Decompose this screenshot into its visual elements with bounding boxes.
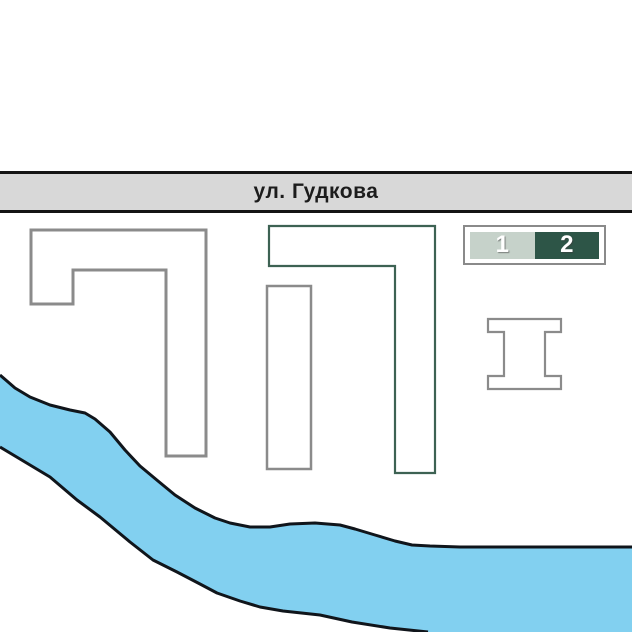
block-2-button[interactable]: 2 bbox=[535, 232, 600, 259]
building-outline-right bbox=[488, 319, 561, 389]
site-map: ул. Гудкова 1 2 bbox=[0, 0, 632, 632]
river bbox=[0, 375, 632, 632]
street-band: ул. Гудкова bbox=[0, 171, 632, 213]
block-selector: 1 2 bbox=[463, 225, 606, 265]
street-label: ул. Гудкова bbox=[254, 180, 379, 204]
map-shapes bbox=[0, 0, 632, 632]
building-outline-center-small bbox=[267, 286, 311, 469]
block-1-button[interactable]: 1 bbox=[470, 232, 535, 259]
